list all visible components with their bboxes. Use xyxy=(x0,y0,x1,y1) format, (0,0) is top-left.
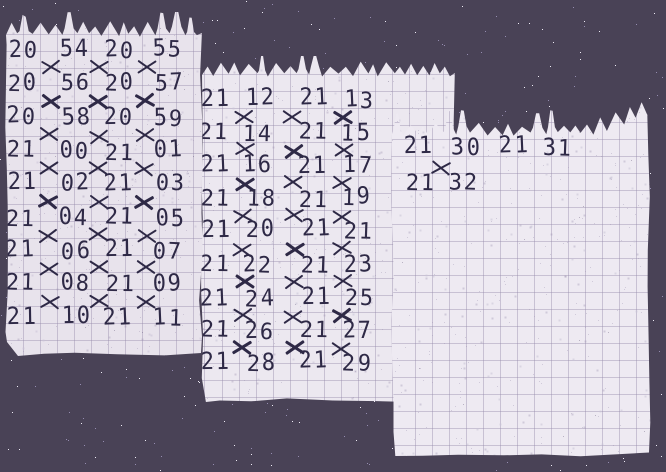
time-digits: 25 xyxy=(345,287,376,309)
x-mark xyxy=(282,109,302,125)
time-digits: 03 xyxy=(155,172,186,194)
time-digits: 21 xyxy=(299,121,330,143)
time-digits: 58 xyxy=(62,108,93,130)
time-digits: 26 xyxy=(245,321,276,343)
time-digits: 21 xyxy=(104,142,135,164)
time-digits: 21 xyxy=(6,208,37,230)
x-mark xyxy=(88,93,109,110)
x-mark xyxy=(333,142,353,158)
time-digits: 21 xyxy=(7,172,38,194)
x-mark xyxy=(88,160,108,176)
time-digits: 11 xyxy=(153,308,184,330)
star-dots-dim xyxy=(0,0,1,1)
time-digits: 57 xyxy=(154,73,185,95)
x-mark xyxy=(37,227,58,244)
time-digits: 21 xyxy=(201,89,232,111)
time-digits: 21 xyxy=(103,308,134,330)
time-digits: 02 xyxy=(60,173,91,195)
x-mark xyxy=(88,292,109,309)
x-mark xyxy=(135,127,156,144)
time-digits: 30 xyxy=(451,138,482,160)
time-digits: 20 xyxy=(9,40,40,62)
x-mark xyxy=(234,109,255,126)
x-mark xyxy=(134,194,155,211)
time-digits: 21 xyxy=(302,287,333,309)
x-mark xyxy=(332,209,352,225)
time-digits: 20 xyxy=(104,107,135,129)
time-digits: 21 xyxy=(104,174,135,196)
time-digits: 21 xyxy=(5,272,36,294)
time-digits: 54 xyxy=(59,39,90,61)
x-mark xyxy=(232,340,253,357)
time-digits: 12 xyxy=(245,88,276,110)
time-digits: 21 xyxy=(200,253,231,275)
time-digits: 21 xyxy=(299,88,330,110)
time-digits: 09 xyxy=(153,274,184,296)
x-mark xyxy=(232,207,254,225)
time-digits: 21 xyxy=(202,220,233,242)
time-digits: 21 xyxy=(7,307,38,329)
time-digits: 21 xyxy=(201,352,232,374)
x-mark xyxy=(284,143,305,160)
x-mark xyxy=(284,206,305,224)
time-digits: 21 xyxy=(201,319,232,341)
time-digits: 21 xyxy=(5,240,36,262)
time-digits: 21 xyxy=(404,136,435,158)
x-mark xyxy=(331,239,352,257)
note-content: 2054205520562057205820592100210121022103… xyxy=(4,12,204,358)
time-digits: 21 xyxy=(106,273,137,295)
time-digits: 20 xyxy=(7,73,38,95)
time-digits: 21 xyxy=(499,136,530,158)
x-mark xyxy=(88,128,109,146)
time-digits: 21 xyxy=(7,139,38,161)
time-digits: 20 xyxy=(105,73,136,95)
time-digits: 21 xyxy=(104,206,135,228)
x-mark xyxy=(232,307,253,324)
time-digits: 08 xyxy=(61,273,92,295)
x-mark xyxy=(39,160,59,176)
x-mark xyxy=(333,273,354,290)
x-mark xyxy=(431,159,453,177)
time-digits: 13 xyxy=(344,90,375,112)
x-mark xyxy=(39,125,60,142)
x-mark xyxy=(137,59,157,75)
x-mark xyxy=(332,307,353,325)
x-mark xyxy=(332,175,353,193)
time-digits: 59 xyxy=(153,108,184,130)
x-mark xyxy=(136,259,156,275)
x-mark xyxy=(37,193,59,211)
x-mark xyxy=(285,340,305,356)
x-mark xyxy=(40,293,61,311)
x-mark xyxy=(231,241,252,258)
x-mark xyxy=(40,93,61,110)
time-digits: 05 xyxy=(156,209,187,231)
x-mark xyxy=(283,309,303,325)
time-digits: 16 xyxy=(243,155,274,177)
x-mark xyxy=(134,92,155,110)
x-mark xyxy=(235,274,255,290)
note-page-left[interactable]: 2054205520562057205820592100210121022103… xyxy=(4,12,204,358)
x-mark xyxy=(284,273,305,290)
x-mark xyxy=(136,294,156,311)
x-mark xyxy=(234,140,255,158)
x-mark xyxy=(285,241,305,258)
time-digits: 21 xyxy=(301,255,332,277)
time-digits: 32 xyxy=(449,172,480,194)
x-mark xyxy=(136,228,157,245)
time-digits: 56 xyxy=(61,72,92,94)
time-digits: 21 xyxy=(201,188,232,210)
time-digits: 10 xyxy=(61,306,92,328)
time-digits: 20 xyxy=(105,40,136,62)
time-digits: 21 xyxy=(302,219,333,241)
x-mark xyxy=(333,110,354,127)
x-mark xyxy=(89,59,110,76)
x-mark xyxy=(41,58,62,75)
time-digits: 20 xyxy=(7,106,38,128)
time-digits: 55 xyxy=(153,39,184,61)
x-mark xyxy=(133,160,154,178)
time-digits: 21 xyxy=(199,121,230,143)
x-mark xyxy=(234,177,254,194)
time-digits: 17 xyxy=(343,155,374,177)
time-digits: 04 xyxy=(59,207,90,229)
time-digits: 31 xyxy=(543,138,574,160)
time-digits: 01 xyxy=(153,140,184,162)
time-digits: 21 xyxy=(105,239,136,261)
note-content: 213021312132 xyxy=(390,98,652,458)
x-mark xyxy=(283,174,304,191)
note-page-right[interactable]: 213021312132 xyxy=(390,98,652,458)
x-mark xyxy=(89,258,109,275)
time-digits: 00 xyxy=(59,141,90,163)
time-digits: 27 xyxy=(343,321,374,343)
time-digits: 06 xyxy=(61,241,92,263)
time-digits: 21 xyxy=(300,319,331,341)
x-mark xyxy=(89,193,110,210)
x-mark xyxy=(88,226,108,242)
time-digits: 21 xyxy=(201,155,232,177)
x-mark xyxy=(39,261,59,277)
time-digits: 21 xyxy=(199,289,230,311)
time-digits: 07 xyxy=(153,241,184,263)
scene-background: 2054205520562057205820592100210121022103… xyxy=(0,0,666,472)
x-mark xyxy=(331,341,351,357)
